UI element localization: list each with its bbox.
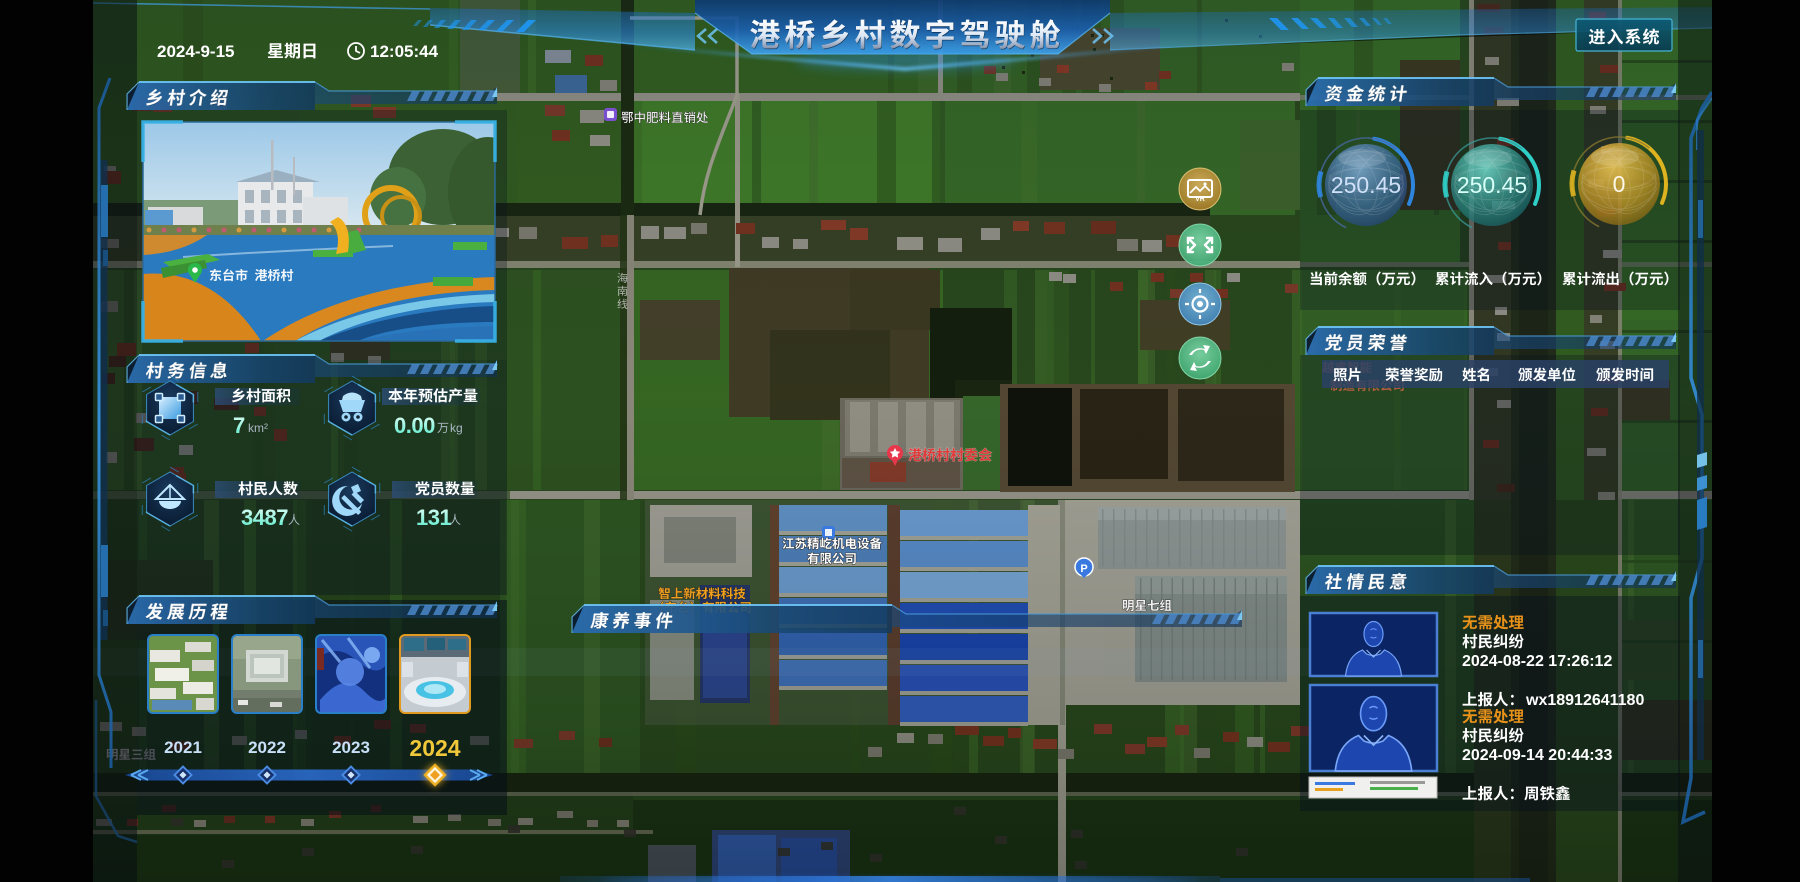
svg-text:P: P — [1080, 563, 1087, 575]
svg-text:2021: 2021 — [164, 738, 202, 757]
svg-text:2024-9-15: 2024-9-15 — [157, 42, 235, 61]
svg-text:12:05:44: 12:05:44 — [370, 42, 439, 61]
svg-text:2023: 2023 — [332, 738, 370, 757]
svg-text:250.45: 250.45 — [1331, 172, 1401, 198]
svg-text:2024-09-14 20:44:33: 2024-09-14 20:44:33 — [1462, 747, 1612, 764]
svg-text:2022: 2022 — [248, 738, 286, 757]
svg-text:7: 7 — [233, 413, 245, 438]
svg-text:VR: VR — [1195, 196, 1205, 203]
svg-text:131: 131 — [416, 505, 451, 530]
svg-text:kg: kg — [450, 421, 463, 435]
svg-text:km²: km² — [248, 421, 268, 435]
svg-text:0: 0 — [1613, 171, 1626, 197]
svg-text:2024-08-22 17:26:12: 2024-08-22 17:26:12 — [1462, 653, 1612, 670]
svg-text:250.45: 250.45 — [1457, 172, 1527, 198]
svg-text:2024: 2024 — [409, 735, 460, 761]
svg-text:3487: 3487 — [241, 505, 288, 530]
svg-text:wx18912641180: wx18912641180 — [1525, 692, 1644, 709]
svg-text:0.00: 0.00 — [394, 413, 435, 438]
